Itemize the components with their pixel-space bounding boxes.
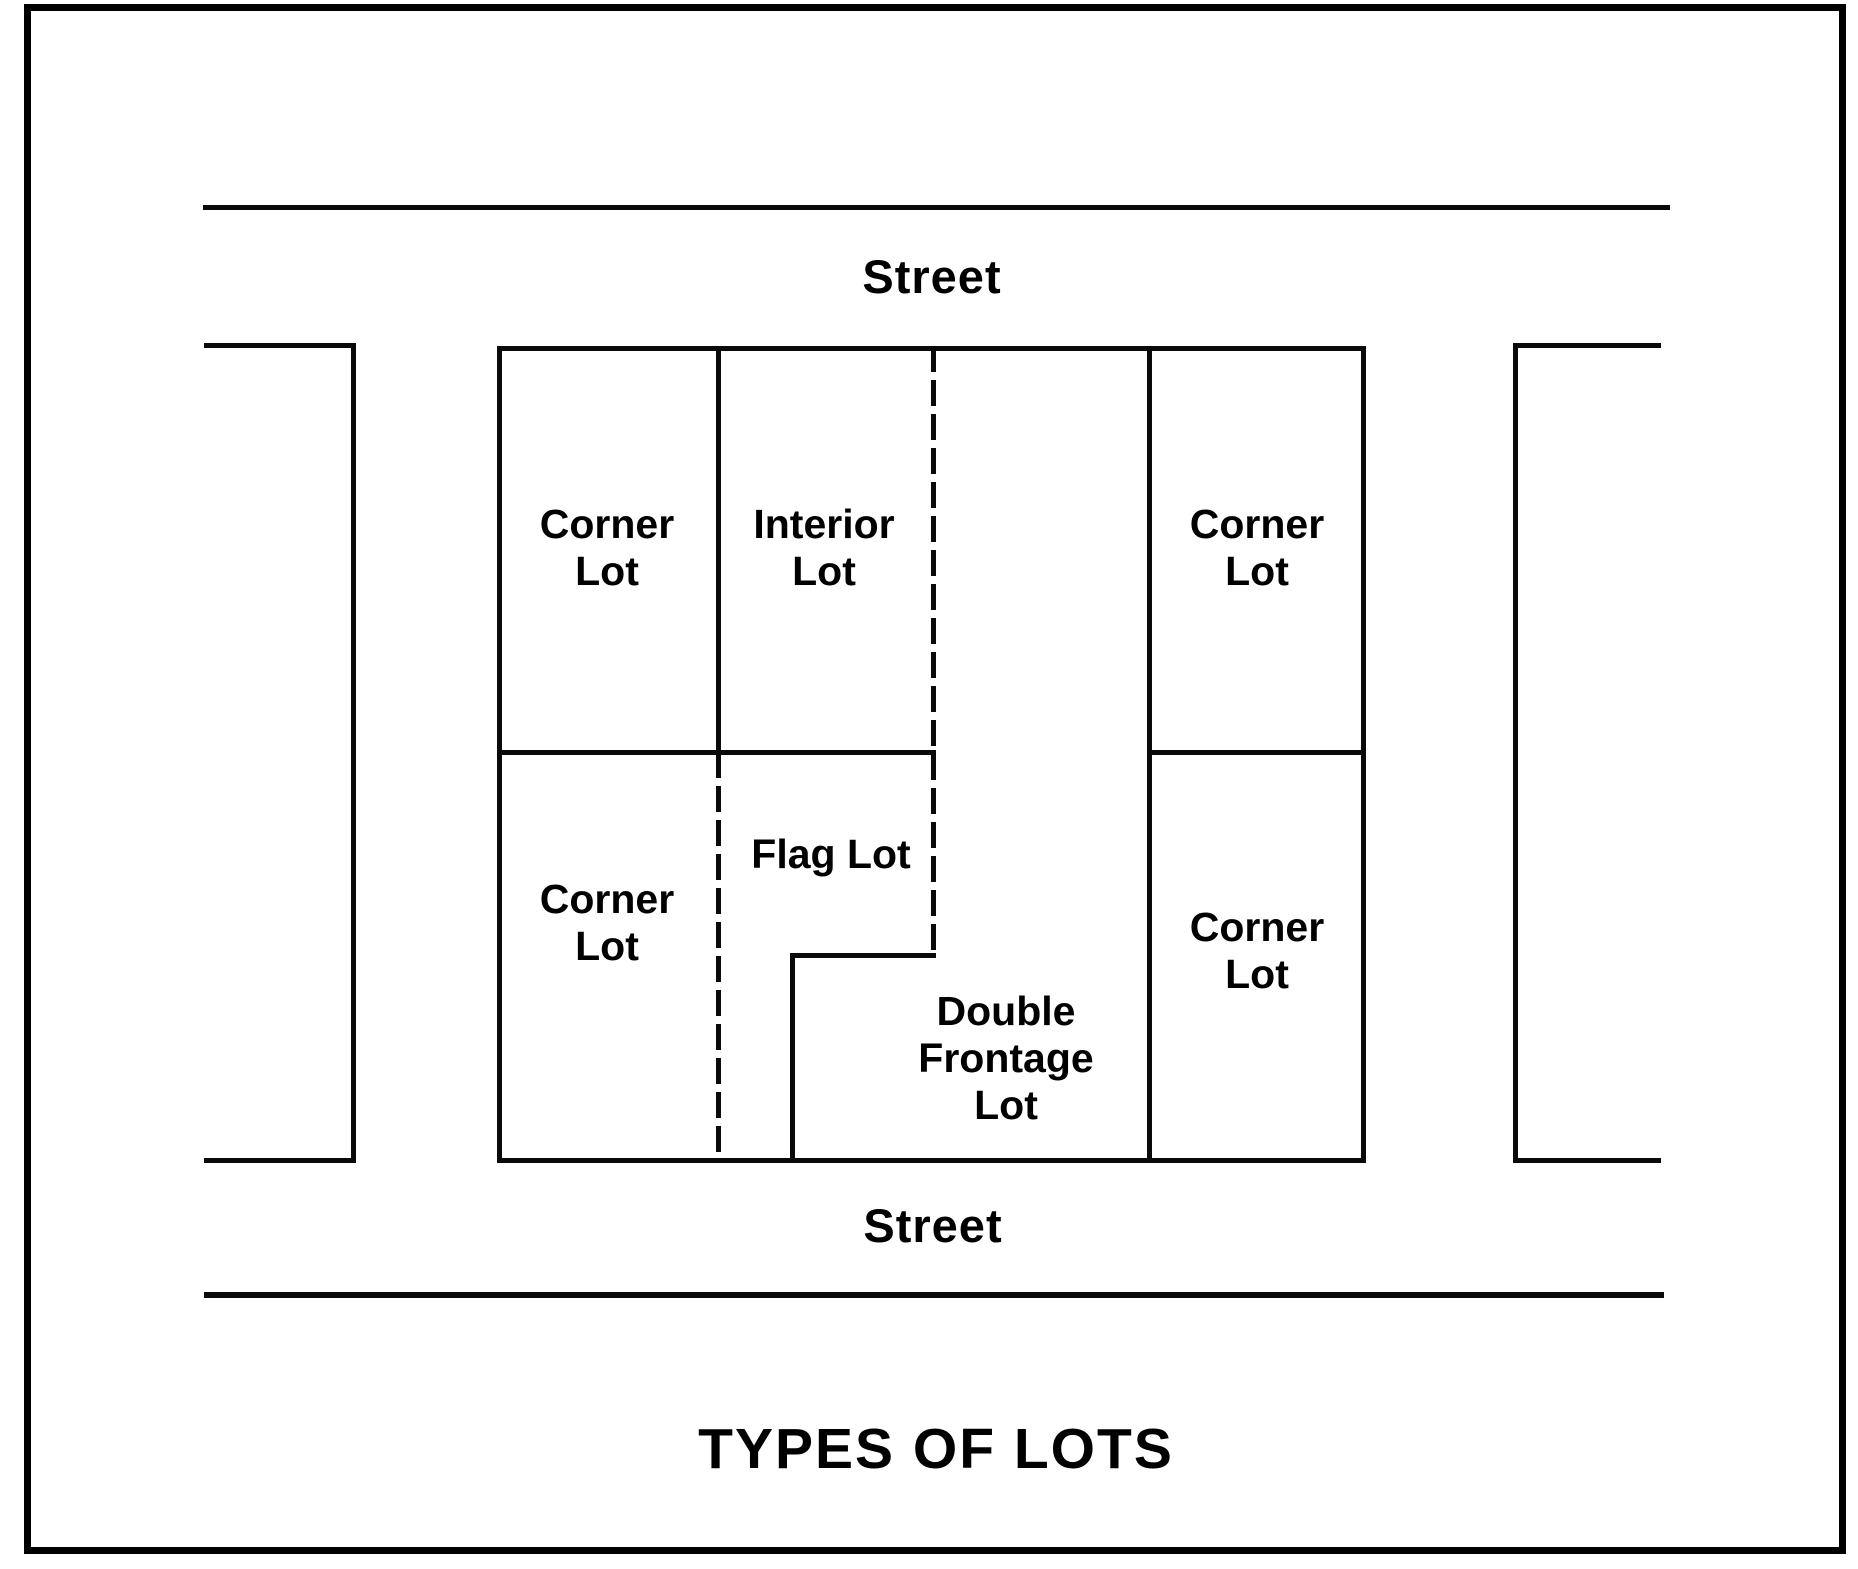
lot-label-flag: Flag Lot	[681, 831, 981, 878]
street-line-bottom	[204, 1292, 1664, 1298]
right-block-bottom-edge	[1513, 1158, 1661, 1163]
lot-label-corner-bottom-left: Corner Lot	[457, 876, 757, 970]
rear-lot-line-left	[497, 750, 936, 755]
lot-label-corner-top-right: Corner Lot	[1107, 501, 1407, 595]
flag-lot-pole-right-edge	[790, 953, 795, 1163]
rear-lot-line-right	[1147, 750, 1366, 755]
right-block-left-edge	[1513, 343, 1518, 1163]
right-block-top-edge	[1513, 343, 1661, 348]
left-block-bottom-edge	[204, 1158, 356, 1163]
street-label-bottom: Street	[783, 1201, 1083, 1251]
central-block-bottom-edge	[497, 1158, 1366, 1163]
left-block-top-edge	[204, 343, 356, 348]
figure-canvas: Street Corner Lot Interior Lot Corner Lo…	[0, 0, 1858, 1569]
figure-title: TYPES OF LOTS	[536, 1420, 1336, 1478]
street-label-top: Street	[782, 252, 1082, 302]
lot-label-double-frontage: Double Frontage Lot	[856, 988, 1156, 1129]
left-block-right-edge	[351, 343, 356, 1163]
lot-label-corner-bottom-right: Corner Lot	[1107, 904, 1407, 998]
lot-label-interior: Interior Lot	[674, 501, 974, 595]
flag-lot-step-horizontal	[790, 953, 936, 958]
street-line-top	[203, 205, 1670, 210]
